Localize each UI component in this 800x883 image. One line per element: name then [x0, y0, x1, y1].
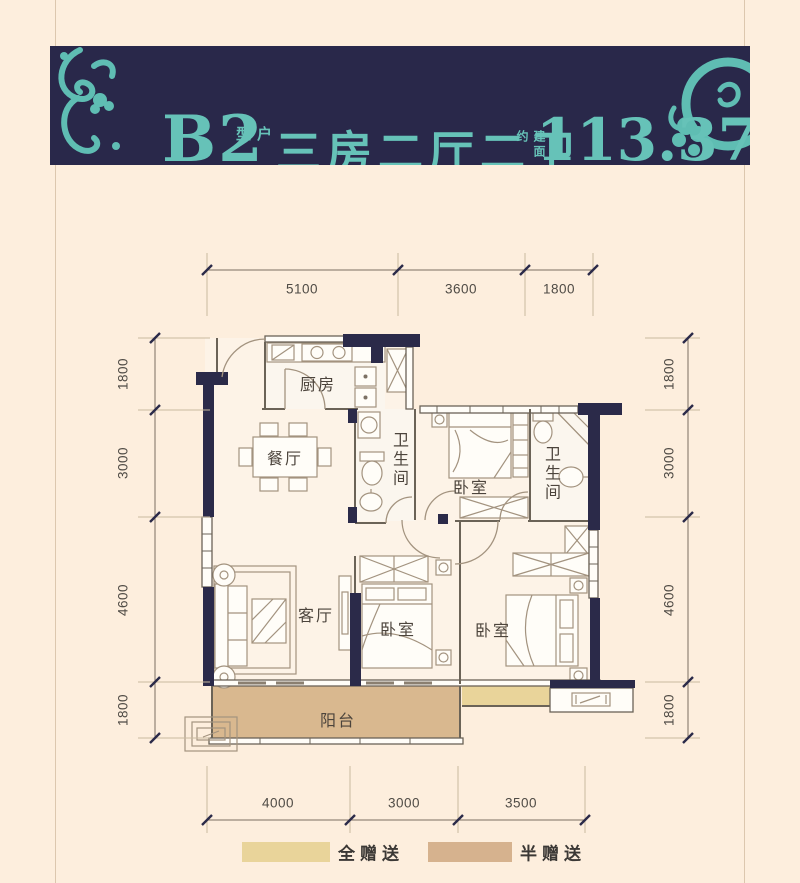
room-label-bathroom-2: 卫生间	[538, 446, 562, 503]
legend-swatch-half-gift	[428, 842, 512, 862]
room-label-bedroom-1: 卧室	[453, 474, 489, 498]
dim-bottom-1: 4000	[262, 796, 294, 811]
dim-left-1: 1800	[116, 358, 131, 390]
dim-top-3: 1800	[543, 282, 575, 297]
dim-top-2: 3600	[445, 282, 477, 297]
dim-right-3: 4600	[662, 584, 677, 616]
room-label-living: 客厅	[298, 602, 334, 626]
room-label-balcony: 阳台	[320, 707, 356, 731]
dim-right-2: 3000	[662, 447, 677, 479]
legend-swatch-full-gift	[242, 842, 330, 862]
room-label-bedroom-2: 卧室	[380, 616, 416, 640]
room-label-kitchen: 厨房	[300, 371, 336, 395]
dim-top-1: 5100	[286, 282, 318, 297]
legend-label-full-gift: 全赠送	[338, 840, 404, 865]
floorplan-page: { "background": "#fdeedd", "header": { "…	[0, 0, 800, 883]
room-label-bedroom-3: 卧室	[475, 617, 511, 641]
dim-right-4: 1800	[662, 694, 677, 726]
room-label-dining: 餐厅	[267, 445, 303, 469]
dim-right-1: 1800	[662, 358, 677, 390]
legend-label-half-gift: 半赠送	[520, 840, 586, 865]
dim-left-2: 3000	[116, 447, 131, 479]
dim-bottom-3: 3500	[505, 796, 537, 811]
dim-left-3: 4600	[116, 584, 131, 616]
room-label-bathroom-1: 卫生间	[386, 432, 410, 489]
dim-left-4: 1800	[116, 694, 131, 726]
dim-bottom-2: 3000	[388, 796, 420, 811]
ac-platform-right	[550, 688, 633, 712]
